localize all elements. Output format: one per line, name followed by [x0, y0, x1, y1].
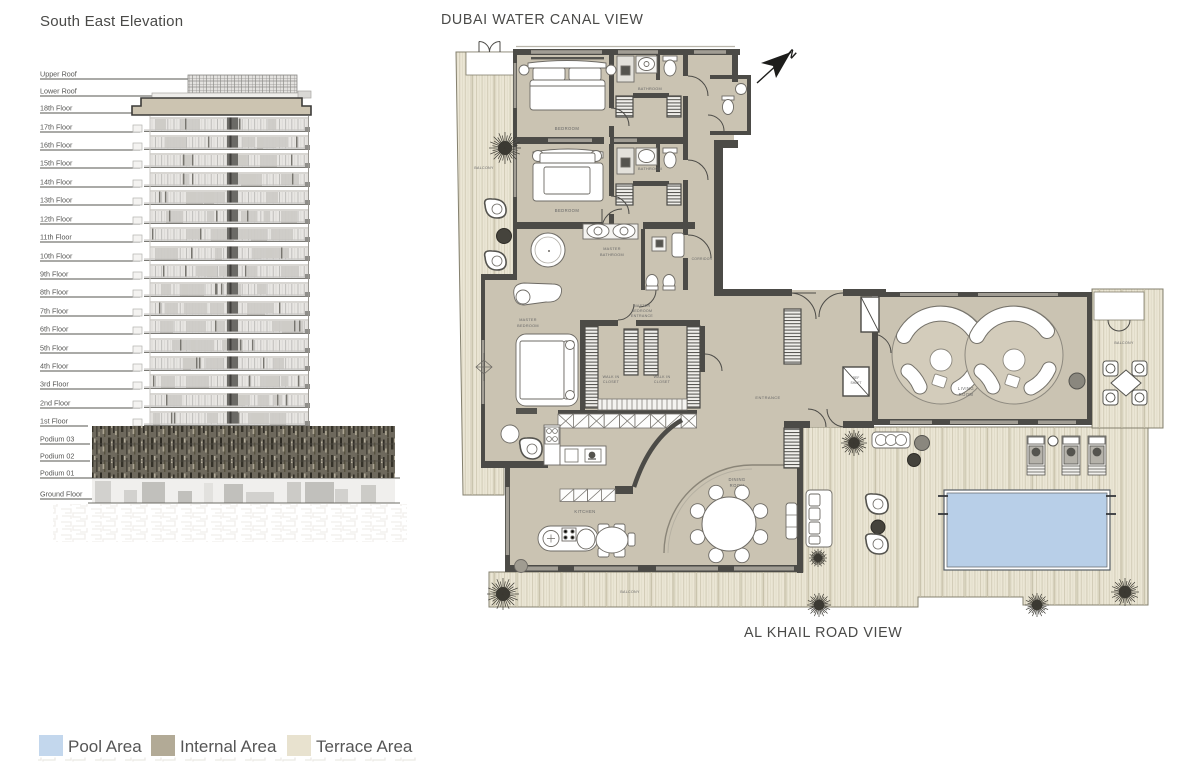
svg-text:BATHROOM: BATHROOM — [600, 253, 624, 257]
svg-text:ENTRANCE: ENTRANCE — [755, 395, 780, 400]
svg-text:Podium 01: Podium 01 — [40, 469, 74, 478]
svg-text:BEDROOM: BEDROOM — [555, 126, 580, 131]
svg-text:LIVING: LIVING — [958, 386, 974, 391]
svg-text:CORRIDOR: CORRIDOR — [692, 257, 713, 261]
svg-text:5th Floor: 5th Floor — [40, 344, 69, 353]
svg-text:CLOSET: CLOSET — [654, 380, 671, 384]
svg-text:WALK IN: WALK IN — [603, 375, 620, 379]
svg-text:BALCONY: BALCONY — [474, 166, 494, 170]
svg-text:16th Floor: 16th Floor — [40, 141, 73, 150]
svg-text:Pool Area: Pool Area — [68, 737, 142, 756]
svg-text:BEDROOM: BEDROOM — [632, 309, 653, 313]
svg-text:10th Floor: 10th Floor — [40, 252, 73, 261]
svg-text:ENTRANCE: ENTRANCE — [631, 314, 653, 318]
svg-text:MASTER: MASTER — [603, 247, 621, 251]
svg-text:DINING: DINING — [728, 477, 745, 482]
svg-text:18th Floor: 18th Floor — [40, 104, 73, 113]
svg-text:AL KHAIL ROAD VIEW: AL KHAIL ROAD VIEW — [744, 625, 902, 641]
svg-text:13th Floor: 13th Floor — [40, 196, 73, 205]
svg-text:REF: REF — [853, 376, 860, 380]
svg-text:6th Floor: 6th Floor — [40, 325, 69, 334]
svg-text:Internal Area: Internal Area — [180, 737, 277, 756]
svg-text:WALK IN: WALK IN — [654, 375, 671, 379]
svg-text:9th Floor: 9th Floor — [40, 270, 69, 279]
svg-text:ROOM: ROOM — [959, 392, 974, 397]
svg-text:MASTER: MASTER — [634, 304, 651, 308]
svg-text:2nd Floor: 2nd Floor — [40, 399, 71, 408]
svg-text:Podium 03: Podium 03 — [40, 435, 74, 444]
svg-text:CLOSET: CLOSET — [603, 380, 620, 384]
svg-text:11th Floor: 11th Floor — [40, 233, 72, 242]
svg-text:BATHROOM: BATHROOM — [638, 167, 662, 171]
svg-text:BALCONY: BALCONY — [620, 590, 640, 594]
svg-text:BALCONY: BALCONY — [1114, 341, 1134, 345]
svg-text:BEDROOM: BEDROOM — [555, 208, 580, 213]
svg-text:1st Floor: 1st Floor — [40, 417, 69, 426]
svg-text:KITCHEN: KITCHEN — [574, 509, 595, 514]
svg-text:8th Floor: 8th Floor — [40, 288, 69, 297]
svg-text:Lower Roof: Lower Roof — [40, 87, 77, 96]
svg-text:7th Floor: 7th Floor — [40, 307, 69, 316]
svg-text:MASTER: MASTER — [519, 318, 537, 322]
svg-text:14th Floor: 14th Floor — [40, 178, 73, 187]
svg-text:SHAFT: SHAFT — [850, 381, 861, 385]
svg-text:BEDROOM: BEDROOM — [517, 324, 539, 328]
svg-text:DUBAI WATER CANAL VIEW: DUBAI WATER CANAL VIEW — [441, 12, 644, 28]
svg-text:12th Floor: 12th Floor — [40, 215, 73, 224]
svg-text:Ground Floor: Ground Floor — [40, 490, 83, 499]
svg-text:Upper Roof: Upper Roof — [40, 70, 77, 79]
svg-text:4th Floor: 4th Floor — [40, 362, 69, 371]
svg-text:Podium 02: Podium 02 — [40, 452, 74, 461]
svg-text:BATHROOM: BATHROOM — [638, 87, 662, 91]
svg-text:3rd Floor: 3rd Floor — [40, 380, 69, 389]
svg-text:15th Floor: 15th Floor — [40, 159, 73, 168]
svg-text:17th Floor: 17th Floor — [40, 123, 73, 132]
svg-text:Terrace Area: Terrace Area — [316, 737, 413, 756]
svg-text:South East Elevation: South East Elevation — [40, 13, 183, 30]
